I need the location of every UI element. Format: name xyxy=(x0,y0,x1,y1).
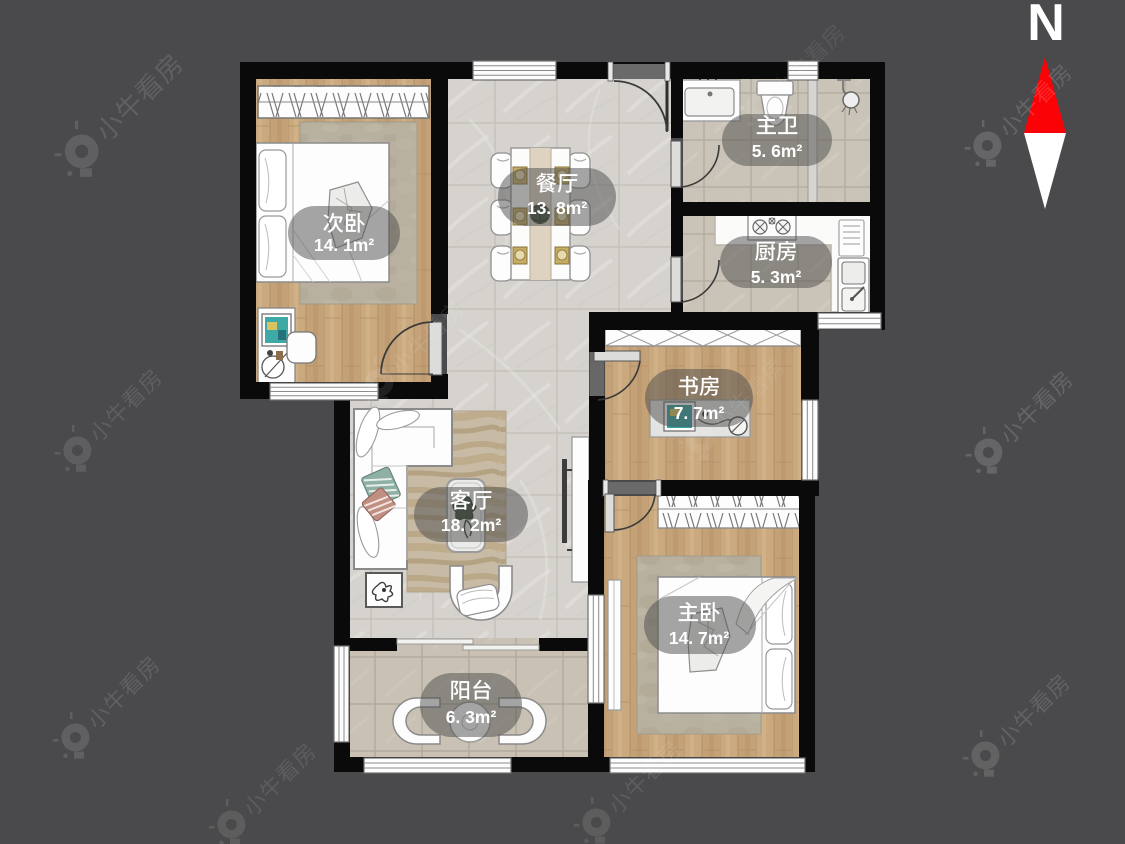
svg-text:14. 7m²: 14. 7m² xyxy=(669,628,729,648)
svg-text:N: N xyxy=(1027,0,1065,52)
svg-text:13. 8m²: 13. 8m² xyxy=(527,198,587,218)
svg-text:5. 6m²: 5. 6m² xyxy=(752,141,803,161)
svg-text:5. 3m²: 5. 3m² xyxy=(751,267,802,287)
svg-text:18. 2m²: 18. 2m² xyxy=(441,515,501,535)
svg-text:6. 3m²: 6. 3m² xyxy=(446,707,497,727)
svg-text:14. 1m²: 14. 1m² xyxy=(314,235,374,255)
